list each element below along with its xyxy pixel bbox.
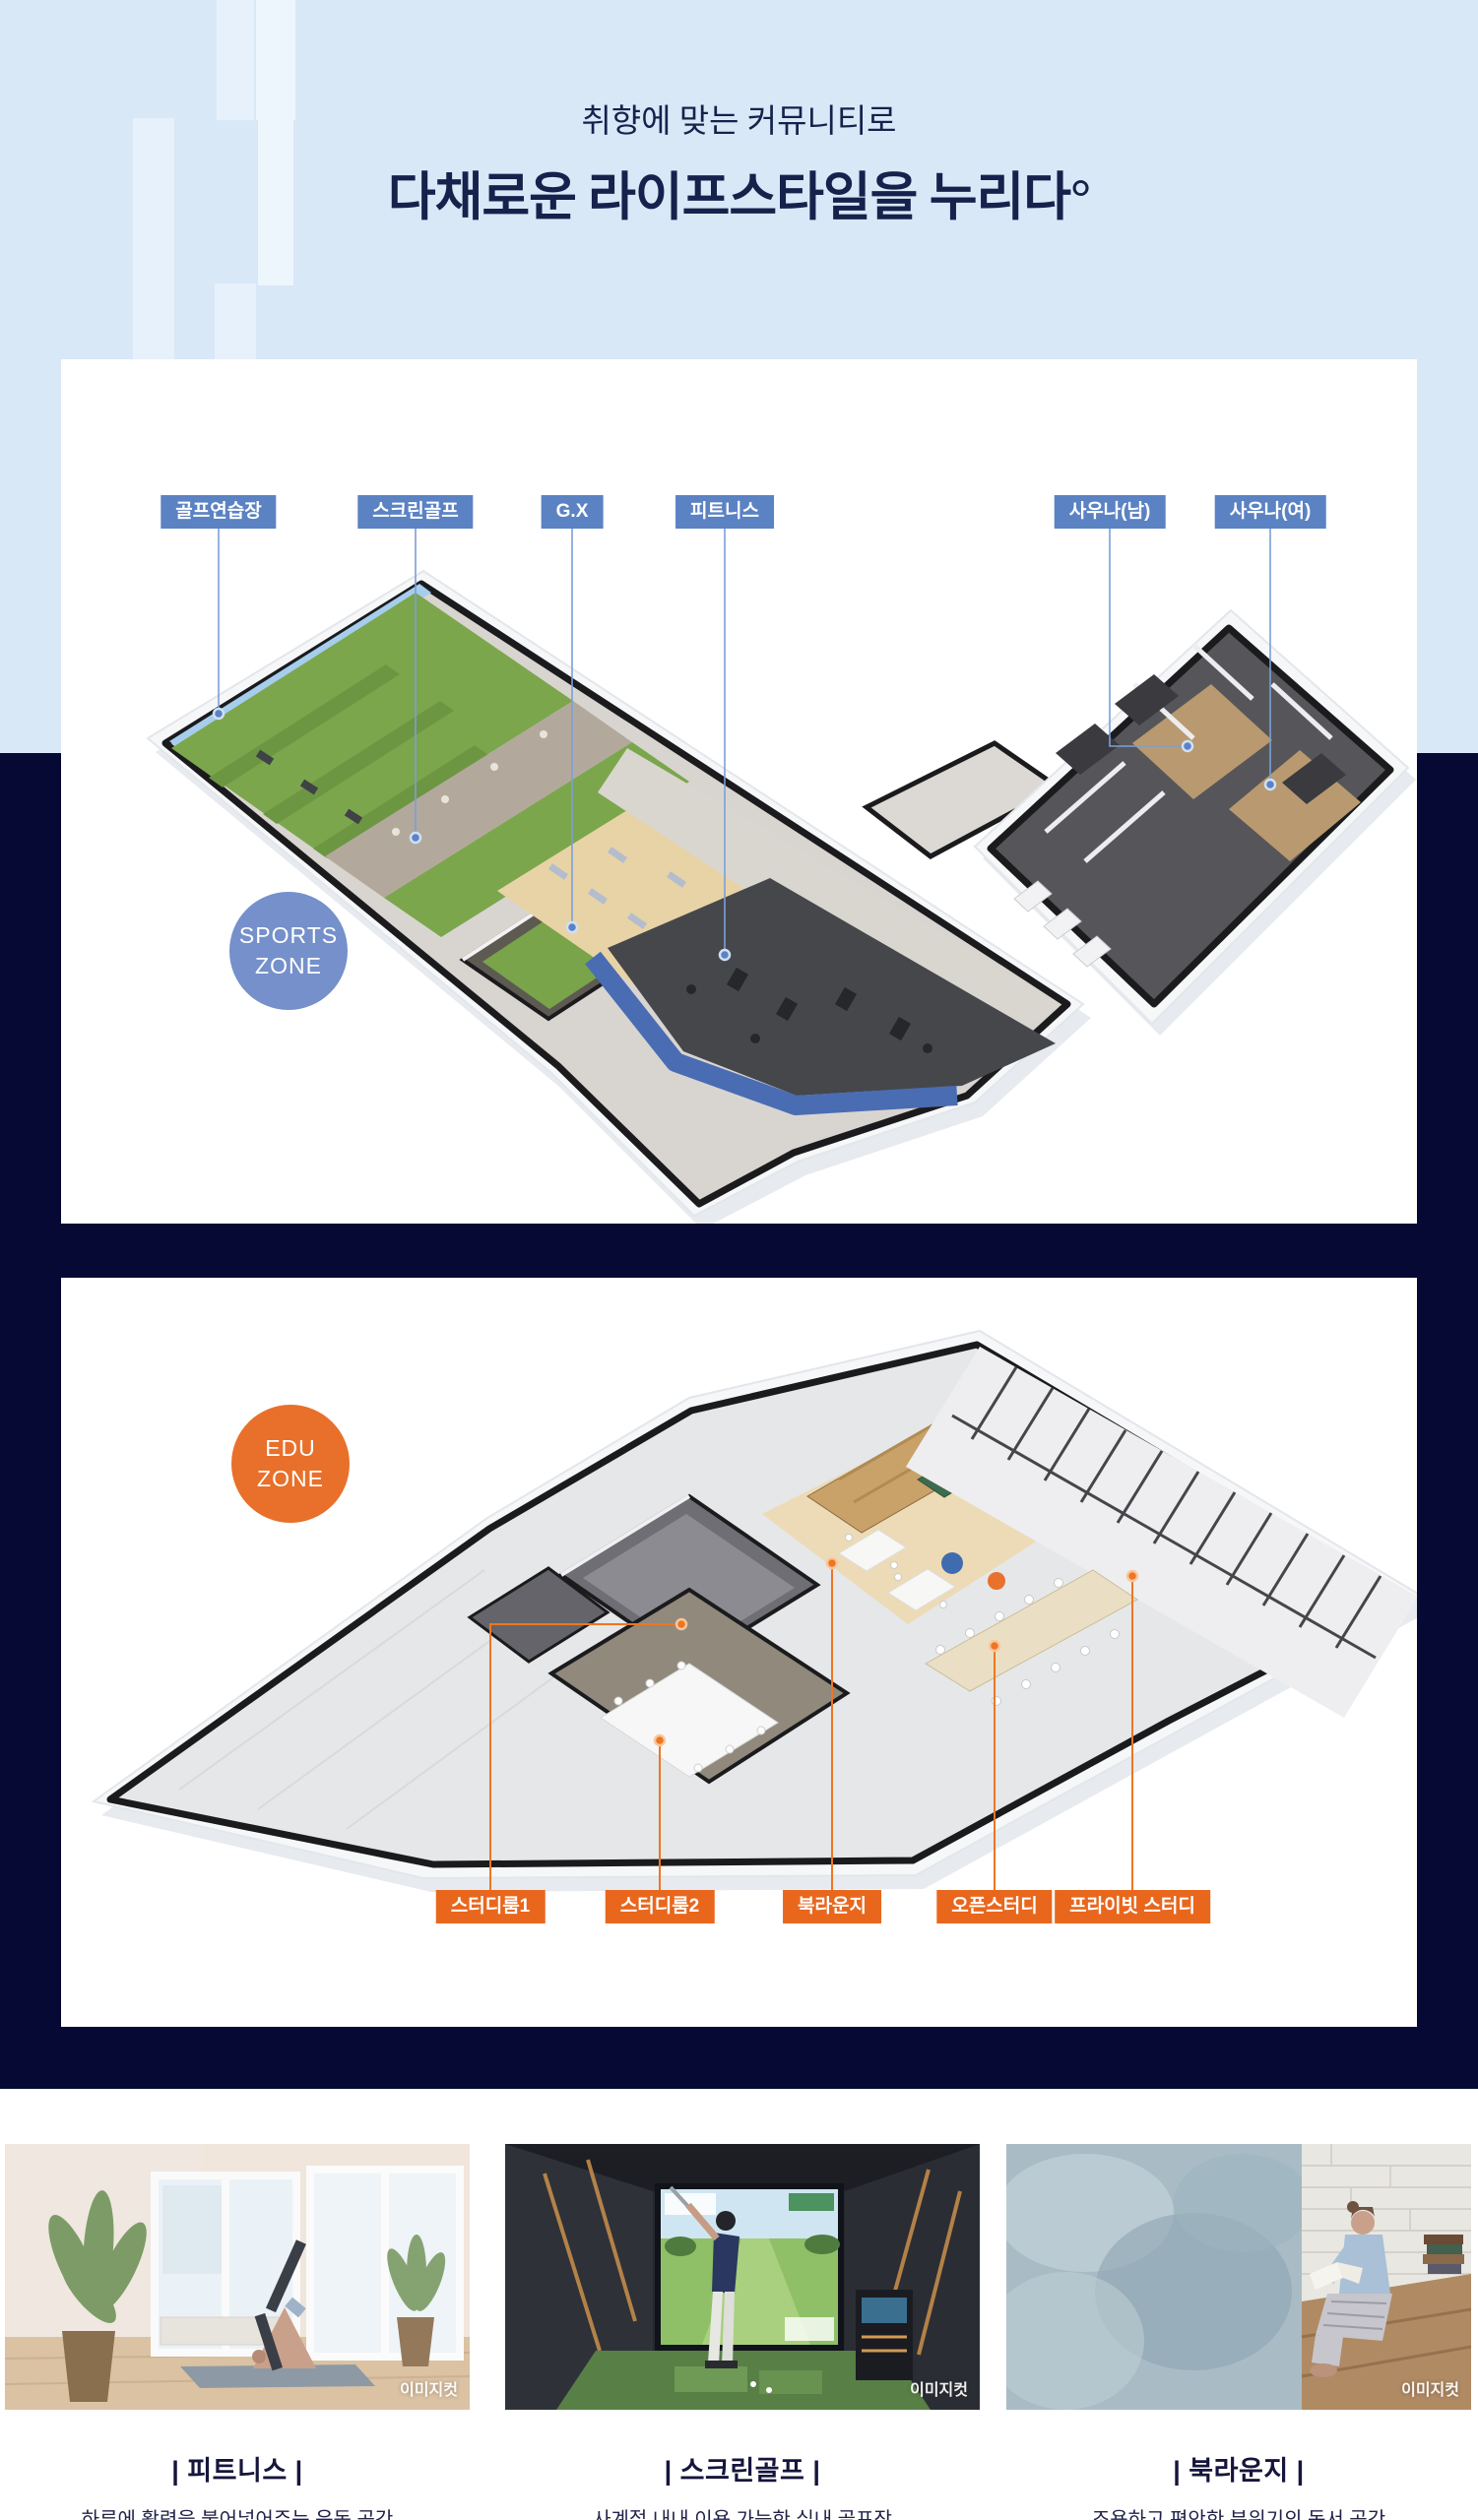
sports-zone-card: 골프연습장 스크린골프 G.X 피트니스 사우나(남) 사우나(여) SPORT…	[61, 359, 1417, 1224]
label-golf-range: 골프연습장	[161, 495, 276, 529]
caption-desc-book-lounge: 조용하고 편안한 분위기의 독서 공간	[1006, 2503, 1471, 2520]
screen-golf-photo: 이미지컷	[505, 2144, 980, 2410]
caption-desc-screen-golf: 사계절 내내 이용 가능한 실내 골프장	[505, 2503, 980, 2520]
book-lounge-photo: 이미지컷	[1006, 2144, 1471, 2410]
caption-desc-fitness: 하루에 활력을 불어넣어주는 운동 공간	[5, 2503, 470, 2520]
page-title: 다채로운 라이프스타일을 누리다°	[0, 156, 1478, 230]
label-fitness: 피트니스	[675, 495, 774, 529]
page-title-block: 취향에 맞는 커뮤니티로 다채로운 라이프스타일을 누리다°	[0, 94, 1478, 230]
watermark-label: 이미지컷	[910, 2376, 968, 2400]
caption-title-book-lounge: | 북라운지 |	[1006, 2449, 1471, 2488]
label-book-lounge: 북라운지	[783, 1890, 881, 1923]
sports-zone-badge-line2: ZONE	[255, 951, 322, 981]
beanbag-orange	[988, 1572, 1005, 1590]
edu-zone-card: 스터디룸1 스터디룸2 북라운지 오픈스터디 프라이빗 스터디 EDU ZONE	[61, 1278, 1417, 2027]
book-stack	[1423, 2235, 1464, 2274]
label-study-room-1: 스터디룸1	[436, 1890, 546, 1923]
sports-floorplan	[61, 359, 1417, 1224]
label-private-study: 프라이빗 스터디	[1055, 1890, 1210, 1923]
console	[856, 2290, 913, 2380]
label-gx: G.X	[542, 495, 604, 529]
photo-card-book-lounge: 이미지컷 | 북라운지 | 조용하고 편안한 분위기의 독서 공간	[1006, 2144, 1471, 2520]
golf-screen	[655, 2183, 844, 2351]
photo-card-screen-golf: 이미지컷 | 스크린골프 | 사계절 내내 이용 가능한 실내 골프장	[505, 2144, 980, 2520]
sports-zone-badge-line1: SPORTS	[239, 920, 338, 951]
edu-zone-badge: EDU ZONE	[231, 1405, 350, 1523]
edu-floorplan	[61, 1278, 1417, 2027]
watermark-label: 이미지컷	[400, 2376, 458, 2400]
community-infographic-page: 취향에 맞는 커뮤니티로 다채로운 라이프스타일을 누리다°	[0, 0, 1478, 2520]
label-sauna-men: 사우나(남)	[1055, 495, 1166, 529]
label-sauna-women: 사우나(여)	[1215, 495, 1326, 529]
watermark-label: 이미지컷	[1401, 2376, 1459, 2400]
edu-zone-badge-line2: ZONE	[257, 1464, 324, 1494]
sports-zone-badge: SPORTS ZONE	[229, 892, 348, 1010]
label-study-room-2: 스터디룸2	[606, 1890, 715, 1923]
label-open-study: 오픈스터디	[936, 1890, 1052, 1923]
edu-zone-badge-line1: EDU	[265, 1433, 316, 1464]
page-subtitle: 취향에 맞는 커뮤니티로	[0, 94, 1478, 142]
photo-card-fitness: 이미지컷 | 피트니스 | 하루에 활력을 불어넣어주는 운동 공간	[5, 2144, 470, 2520]
photo-card-section: 이미지컷 | 피트니스 | 하루에 활력을 불어넣어주는 운동 공간	[0, 2089, 1478, 2520]
label-screen-golf: 스크린골프	[357, 495, 473, 529]
beanbag-blue	[941, 1552, 963, 1574]
caption-title-screen-golf: | 스크린골프 |	[505, 2449, 980, 2488]
caption-title-fitness: | 피트니스 |	[5, 2449, 470, 2488]
fitness-photo: 이미지컷	[5, 2144, 470, 2410]
